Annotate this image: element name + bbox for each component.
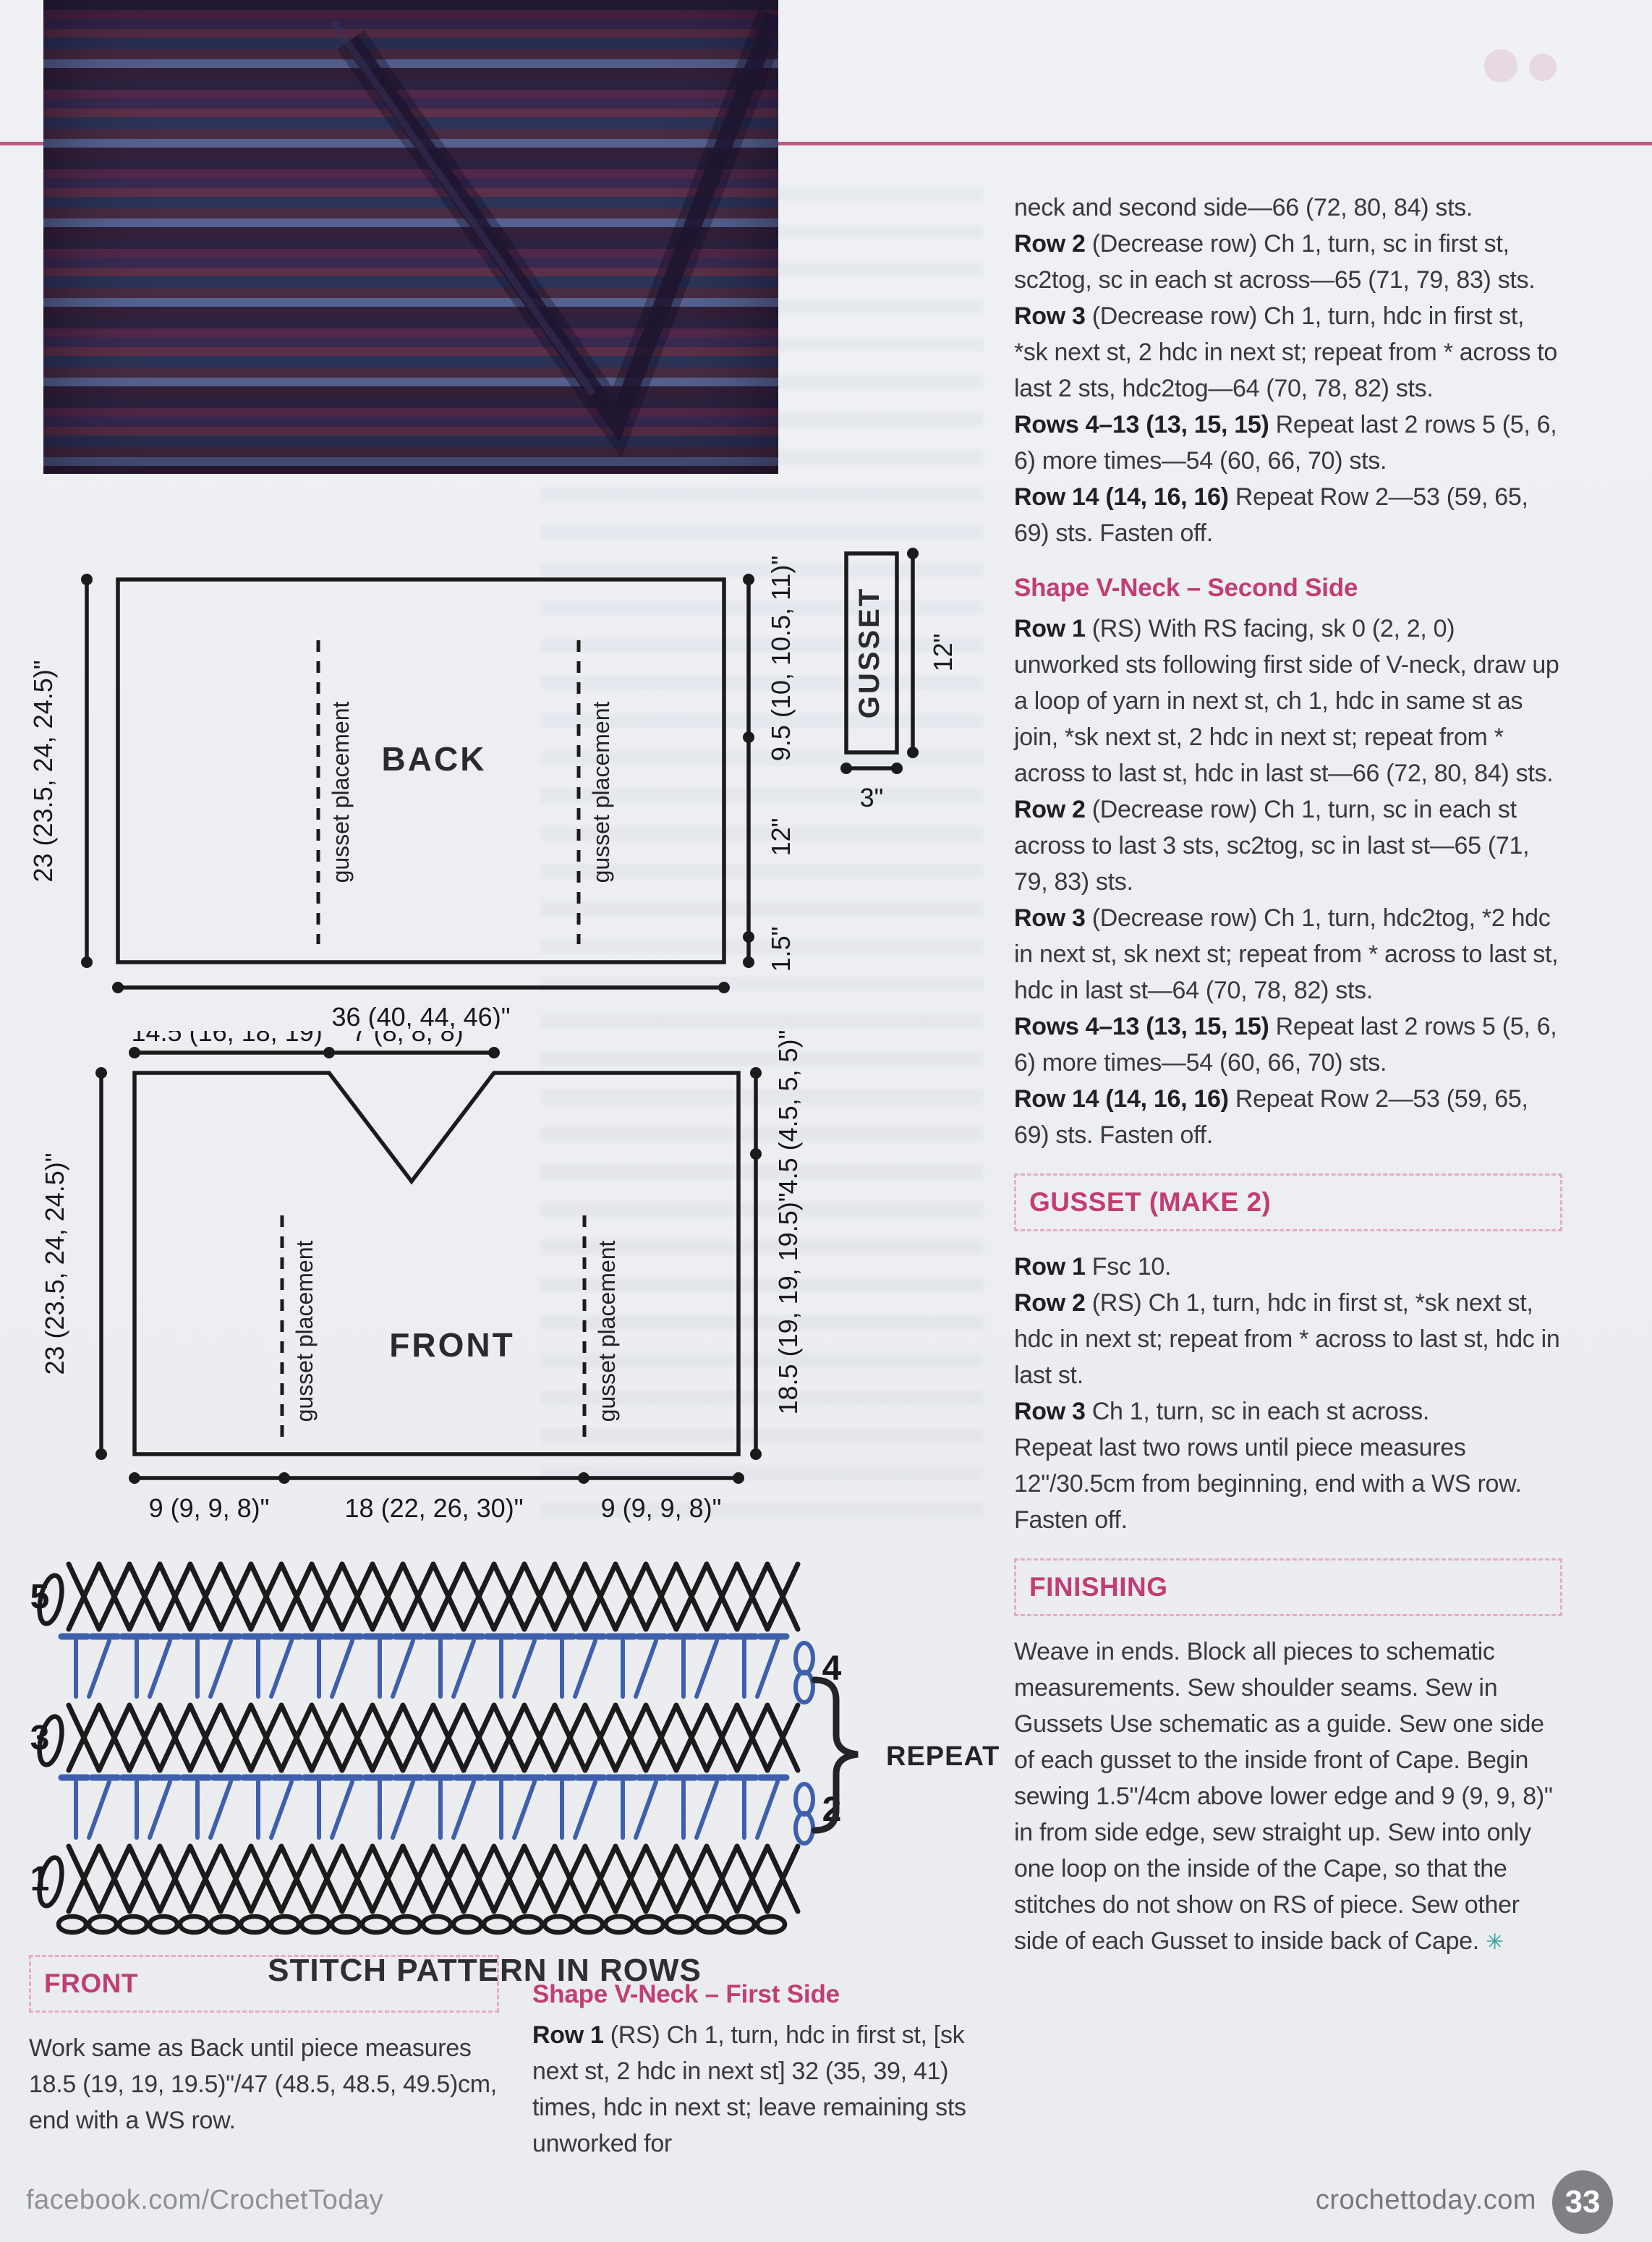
pattern-paragraph: Row 1 (RS) With RS facing, sk 0 (2, 2, 0… <box>1014 611 1562 791</box>
shape-first-side-section: Shape V-Neck – First Side Row 1 (RS) Ch … <box>532 1976 997 2162</box>
page-number-badge: 33 <box>1552 2170 1613 2234</box>
bleedthrough-icon <box>1484 49 1517 82</box>
end-of-pattern-icon: ✳ <box>1486 1930 1504 1954</box>
pattern-paragraph: Row 14 (14, 16, 16) Repeat Row 2—53 (59,… <box>1014 1081 1562 1153</box>
cape-photo <box>43 0 778 474</box>
bleedthrough-icon <box>1529 54 1557 81</box>
front-left-dim: 23 (23.5, 24, 24.5)" <box>40 1153 69 1375</box>
page-number: 33 <box>1565 2184 1601 2220</box>
pattern-paragraph: Repeat last two rows until piece measure… <box>1014 1430 1562 1502</box>
pattern-paragraph: Rows 4–13 (13, 15, 15) Repeat last 2 row… <box>1014 1009 1562 1081</box>
front-schematic: 14.5 (16, 18, 19)" 7 (8, 8, 8)" FRONT 23… <box>0 1031 1013 1546</box>
magazine-page: BACK 23 (23.5, 24, 24.5)" 36 (40, 44, 46… <box>0 0 1652 2242</box>
pattern-paragraph: Row 3 Ch 1, turn, sc in each st across. <box>1014 1393 1562 1430</box>
gusset-placement-label: gusset placement <box>328 701 354 883</box>
pattern-right-column: neck and second side—66 (72, 80, 84) sts… <box>1014 190 1562 1961</box>
front-right-top-dim: 4.5 (4.5, 5, 5)" <box>773 1031 803 1194</box>
back-left-dim: 23 (23.5, 24, 24.5)" <box>28 661 58 883</box>
front-section-header: FRONT <box>29 1955 499 2013</box>
stitch-pattern-chart: 53142REPEATSTITCH PATTERN IN ROWS <box>0 1555 1157 2004</box>
front-top-right-dim: 7 (8, 8, 8)" <box>352 1031 473 1047</box>
pattern-paragraph: Row 2 (RS) Ch 1, turn, hdc in first st, … <box>1014 1285 1562 1393</box>
pattern-paragraph: Row 3 (Decrease row) Ch 1, turn, hdc in … <box>1014 298 1562 407</box>
pattern-paragraph: Rows 4–13 (13, 15, 15) Repeat last 2 row… <box>1014 407 1562 479</box>
front-bottom-right-dim: 9 (9, 9, 8)" <box>601 1493 722 1523</box>
pattern-paragraph: Weave in ends. Block all pieces to schem… <box>1014 1634 1562 1961</box>
gusset-label: GUSSET <box>853 587 885 718</box>
back-right-bottom-dim: 1.5" <box>766 927 796 972</box>
front-right-bottom-dim: 18.5 (19, 19, 19.5)" <box>773 1193 803 1415</box>
pattern-paragraph: Fasten off. <box>1014 1502 1562 1538</box>
front-top-left-dim: 14.5 (16, 18, 19)" <box>132 1031 332 1047</box>
front-bottom-left-dim: 9 (9, 9, 8)" <box>149 1493 270 1523</box>
back-label: BACK <box>382 740 487 778</box>
v-neck-shape-overlay <box>43 0 778 474</box>
front-label: FRONT <box>389 1326 514 1364</box>
pattern-paragraph: Row 3 (Decrease row) Ch 1, turn, hdc2tog… <box>1014 900 1562 1009</box>
front-section: FRONT Work same as Back until piece meas… <box>29 1955 499 2139</box>
back-right-top-dim: 9.5 (10, 10.5, 11)" <box>766 556 796 761</box>
shape-first-heading: Shape V-Neck – First Side <box>532 1976 997 2013</box>
pattern-section-header: FINISHING <box>1014 1558 1562 1616</box>
svg-text:3: 3 <box>30 1719 50 1757</box>
front-outline <box>135 1073 738 1454</box>
svg-text:REPEAT: REPEAT <box>886 1741 1000 1772</box>
pattern-paragraph: Row 1 (RS) Ch 1, turn, hdc in first st, … <box>532 2017 997 2162</box>
footer-facebook-url: facebook.com/CrochetToday <box>26 2185 383 2216</box>
footer-website-url: crochettoday.com <box>1316 2185 1536 2216</box>
pattern-paragraph: neck and second side—66 (72, 80, 84) sts… <box>1014 190 1562 226</box>
front-bottom-mid-dim: 18 (22, 26, 30)" <box>345 1493 524 1523</box>
pattern-section-header: GUSSET (MAKE 2) <box>1014 1173 1562 1231</box>
pattern-paragraph: Row 2 (Decrease row) Ch 1, turn, sc in f… <box>1014 226 1562 298</box>
gusset-side-dim: 12" <box>928 634 958 672</box>
gusset-bottom-dim: 3" <box>860 783 884 812</box>
pattern-paragraph: Row 14 (14, 16, 16) Repeat Row 2—53 (59,… <box>1014 479 1562 551</box>
gusset-placement-label: gusset placement <box>594 1240 620 1422</box>
back-schematic: BACK 23 (23.5, 24, 24.5)" 36 (40, 44, 46… <box>0 543 1013 1029</box>
gusset-placement-label: gusset placement <box>588 701 614 883</box>
pattern-subheading: Shape V-Neck – Second Side <box>1014 570 1562 606</box>
back-bottom-dim: 36 (40, 44, 46)" <box>332 1002 511 1029</box>
pattern-paragraph: Work same as Back until piece measures 1… <box>29 2030 499 2139</box>
pattern-paragraph: Row 1 Fsc 10. <box>1014 1249 1562 1285</box>
gusset-placement-label: gusset placement <box>291 1240 318 1422</box>
pattern-paragraph: Row 2 (Decrease row) Ch 1, turn, sc in e… <box>1014 791 1562 900</box>
back-right-mid-dim: 12" <box>766 818 796 857</box>
svg-text:5: 5 <box>30 1578 50 1616</box>
svg-text:1: 1 <box>30 1860 50 1898</box>
